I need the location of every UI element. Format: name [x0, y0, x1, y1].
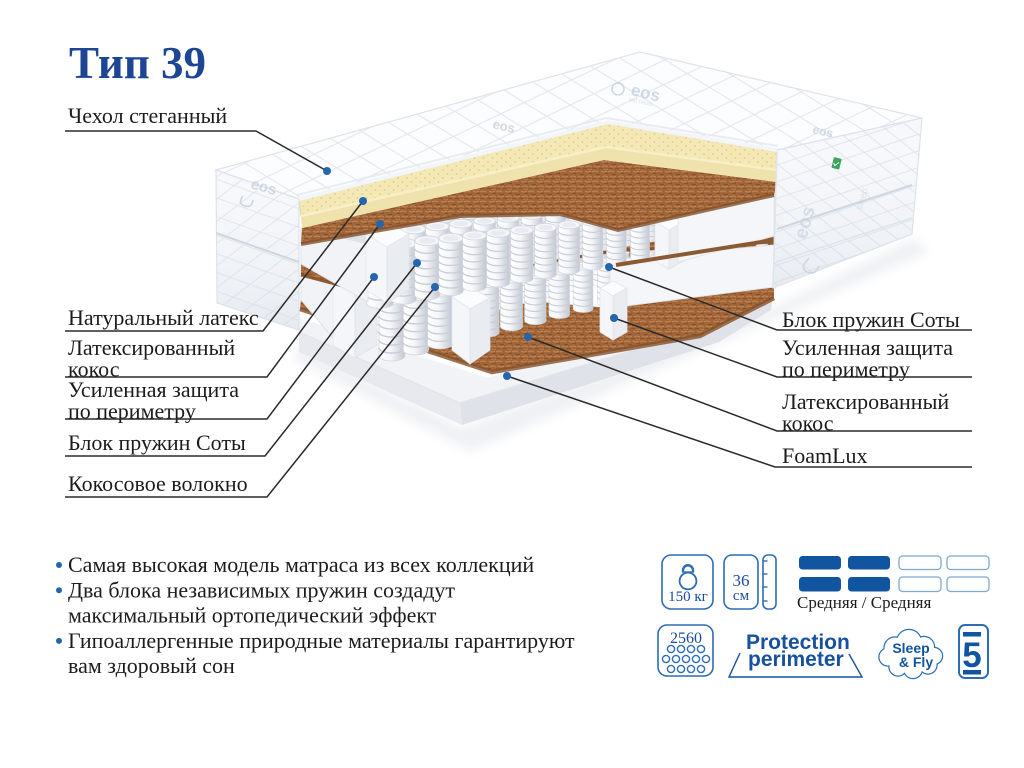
svg-text:Блок пружин Соты: Блок пружин Соты — [68, 430, 246, 455]
svg-text:Натуральный латекс: Натуральный латекс — [68, 305, 259, 330]
svg-text:Тип 39: Тип 39 — [69, 38, 206, 88]
svg-text:Кокосовое волокно: Кокосовое волокно — [68, 471, 248, 496]
svg-text:2560: 2560 — [670, 630, 702, 647]
svg-text:Гипоаллергенные природные мате: Гипоаллергенные природные материалы гара… — [68, 628, 575, 653]
svg-text:Средняя / Средняя: Средняя / Средняя — [797, 593, 931, 612]
svg-text:FoamLux: FoamLux — [782, 443, 868, 468]
svg-text:Блок пружин Соты: Блок пружин Соты — [782, 307, 960, 332]
svg-text:5: 5 — [962, 636, 981, 675]
svg-text:см: см — [733, 588, 750, 604]
svg-text:perimeter: perimeter — [748, 648, 844, 671]
svg-text:& Fly: & Fly — [899, 654, 933, 670]
svg-text:150 кг: 150 кг — [668, 589, 708, 605]
svg-text:Чехол стеганный: Чехол стеганный — [68, 103, 227, 128]
svg-text:Два блока независимых пружин с: Два блока независимых пружин создадут — [68, 577, 455, 602]
svg-text:вам здоровый сон: вам здоровый сон — [68, 653, 235, 678]
svg-text:максимальный ортопедический эф: максимальный ортопедический эффект — [68, 603, 437, 628]
svg-text:Самая высокая модель матраса и: Самая высокая модель матраса из всех кол… — [68, 552, 534, 577]
